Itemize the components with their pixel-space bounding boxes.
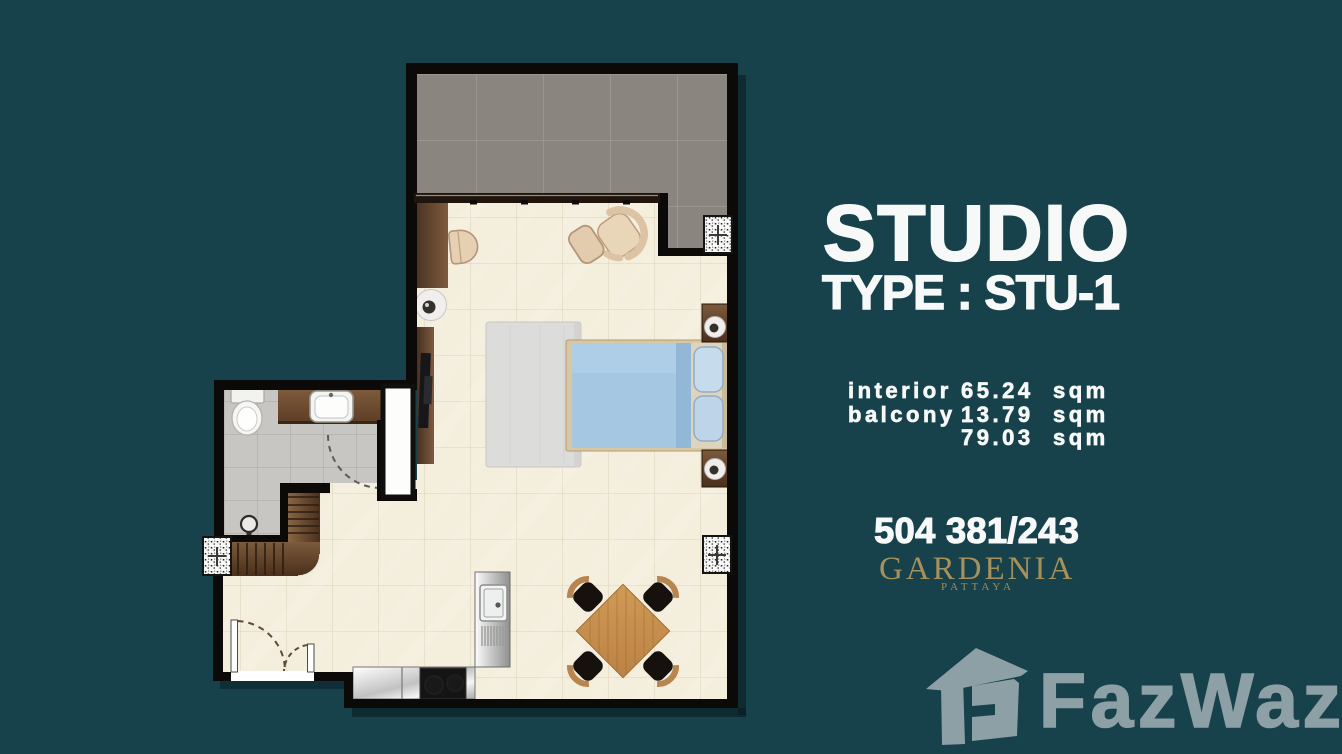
svg-text:FazWaz: FazWaz [1039,658,1342,744]
